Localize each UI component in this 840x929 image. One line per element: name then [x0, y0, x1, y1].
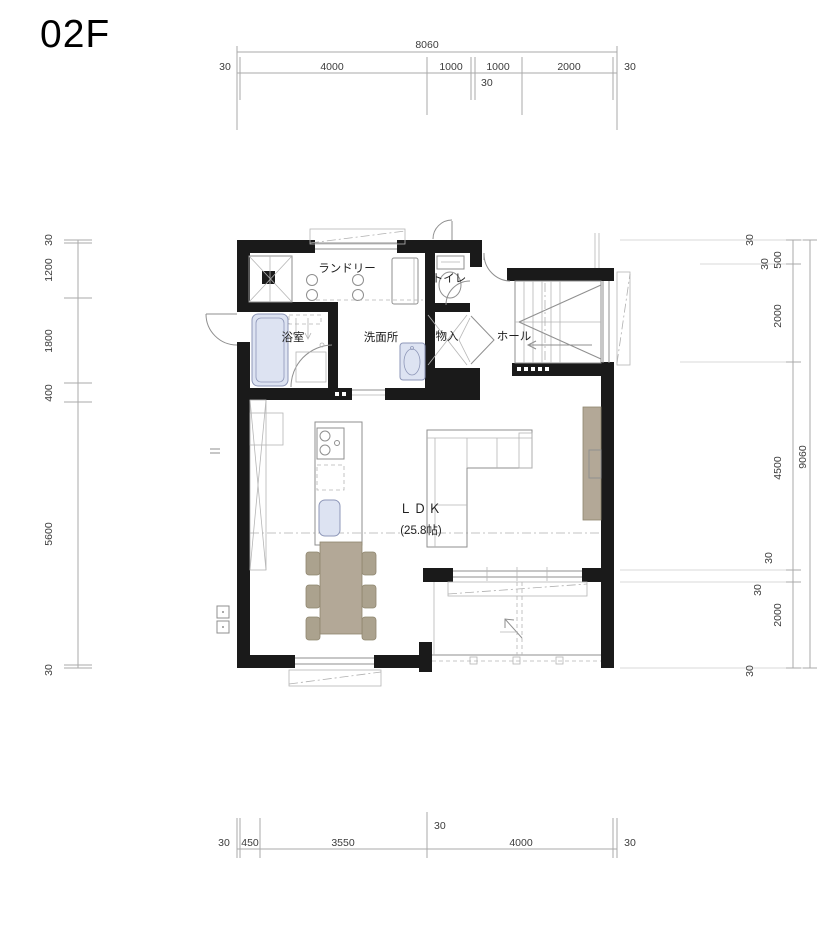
page-title: 02F: [40, 13, 110, 56]
balcony-sliding-window: [448, 567, 587, 596]
dim-left-1: 1200: [43, 258, 55, 282]
ldk-bottom-window: [289, 658, 381, 686]
dining-table-set: [306, 542, 376, 640]
dim-bottom-1: 450: [241, 837, 259, 849]
dim-left-4: 5600: [43, 522, 55, 546]
dim-bottom-4: 30: [624, 837, 636, 849]
kitchen-sink: [319, 500, 340, 536]
dim-left-2: 1800: [43, 329, 55, 353]
dimension-top: 8060 30 4000 1000 1000 2000 30 30: [219, 39, 636, 130]
dim-top-2: 1000: [439, 61, 463, 73]
dim-bottom-3: 4000: [509, 837, 533, 849]
laundry-top-window: [310, 229, 405, 249]
stairs: [515, 281, 601, 363]
laundry-room: ランドリー: [249, 256, 423, 304]
dim-right-0: 30: [744, 234, 756, 246]
dim-top-0: 30: [219, 61, 231, 73]
wall-storage: [250, 400, 283, 570]
washroom-label: 洗面所: [364, 331, 399, 344]
dim-top-total: 8060: [415, 39, 439, 51]
ldk-area-label: (25.8帖): [400, 523, 442, 537]
dim-top-5: 30: [624, 61, 636, 73]
dim-right-3: 4500: [772, 456, 784, 480]
bath-room: 浴室: [252, 314, 326, 386]
floor-plan-drawing: 02F 8060 30 4000 1000 1000 2000 30 30 30…: [0, 0, 840, 929]
kitchen-island: [315, 422, 362, 545]
dim-bottom-2: 3550: [331, 837, 355, 849]
vent-pipe: [595, 233, 599, 268]
floor-plan-page: 02F 8060 30 4000 1000 1000 2000 30 30 30…: [0, 0, 840, 929]
dim-top-sub: 30: [481, 77, 493, 89]
dim-bottom-sub: 30: [434, 820, 446, 832]
laundry-label: ランドリー: [318, 263, 376, 275]
dim-right-5: 30: [744, 665, 756, 677]
bath-label: 浴室: [282, 330, 305, 344]
dim-right-1: 500: [772, 251, 784, 269]
dining-table: [320, 542, 362, 634]
dimension-left: 30 1200 1800 400 5600 30: [43, 234, 92, 676]
dim-right-sub1: 30: [763, 552, 775, 564]
ldk-label: ＬＤＫ: [399, 502, 443, 516]
dim-bottom-0: 30: [218, 837, 230, 849]
toilet-top-door: [433, 220, 452, 240]
washroom-sliding-door: [352, 390, 385, 395]
tv-board: [583, 407, 601, 520]
sofa: [427, 430, 532, 547]
storage-bifold-door: [459, 316, 494, 364]
dim-right-total: 9060: [797, 445, 809, 469]
balcony: [432, 582, 601, 664]
dim-top-1: 4000: [320, 61, 344, 73]
stair-side-window: [603, 272, 630, 365]
dim-top-3: 1000: [486, 61, 510, 73]
dim-left-5: 30: [43, 664, 55, 676]
dim-right-2: 2000: [772, 304, 784, 328]
bath-exterior-door: [206, 314, 237, 345]
outlet-boxes: [210, 449, 229, 633]
dim-left-0: 30: [43, 234, 55, 246]
dim-right-sub0: 30: [759, 258, 771, 270]
hall: ホール: [497, 330, 532, 343]
slope-arrow: [500, 619, 522, 638]
dim-right-4: 2000: [772, 603, 784, 627]
toilet-room: トイレ: [432, 256, 467, 298]
ldk: ＬＤＫ (25.8帖): [210, 400, 601, 640]
dimension-bottom: 30 450 3550 4000 30 30: [218, 812, 636, 858]
hall-entry-door: [484, 253, 510, 281]
hall-label: ホール: [497, 330, 532, 343]
dim-top-4: 2000: [557, 61, 581, 73]
storage-label: 物入: [436, 329, 459, 343]
dim-left-3: 400: [43, 384, 55, 402]
dim-right-sub2: 30: [752, 584, 764, 596]
dimension-right: 30 30 500 2000 4500 30 30 2000 30 9060: [620, 234, 817, 677]
toilet-label: トイレ: [432, 273, 467, 285]
washroom: 洗面所: [364, 331, 425, 380]
